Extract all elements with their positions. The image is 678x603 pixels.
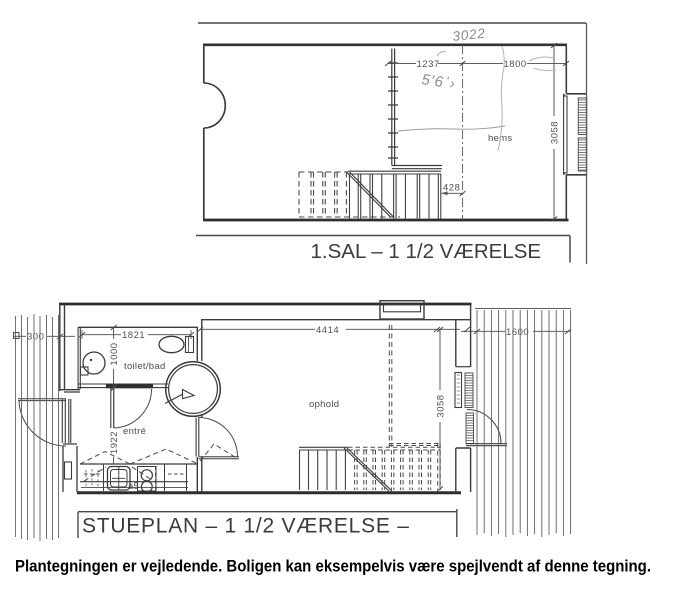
svg-text:428: 428 bbox=[443, 183, 460, 194]
svg-text:1237: 1237 bbox=[417, 59, 440, 70]
svg-text:1922: 1922 bbox=[109, 431, 120, 454]
svg-text:4414: 4414 bbox=[316, 325, 339, 336]
svg-text:STUEPLAN – 1 1/2 VÆRELSE –: STUEPLAN – 1 1/2 VÆRELSE – bbox=[82, 515, 410, 538]
svg-text:3058: 3058 bbox=[550, 121, 561, 144]
svg-text:entré: entré bbox=[123, 426, 146, 437]
svg-text:Plantegningen er vejledende. B: Plantegningen er vejledende. Boligen kan… bbox=[15, 558, 651, 576]
svg-text:1800: 1800 bbox=[504, 59, 527, 70]
svg-text:1000: 1000 bbox=[109, 342, 120, 365]
svg-text:1821: 1821 bbox=[122, 330, 145, 341]
svg-text:ophold: ophold bbox=[309, 399, 339, 410]
svg-text:1600: 1600 bbox=[506, 327, 529, 338]
svg-text:toilet/bad: toilet/bad bbox=[124, 361, 166, 372]
svg-text:3058: 3058 bbox=[436, 394, 447, 417]
svg-text:a5: a5 bbox=[128, 481, 139, 492]
svg-text:300: 300 bbox=[27, 332, 44, 343]
svg-text:1.SAL – 1 1/2 VÆRELSE: 1.SAL – 1 1/2 VÆRELSE bbox=[311, 240, 542, 263]
